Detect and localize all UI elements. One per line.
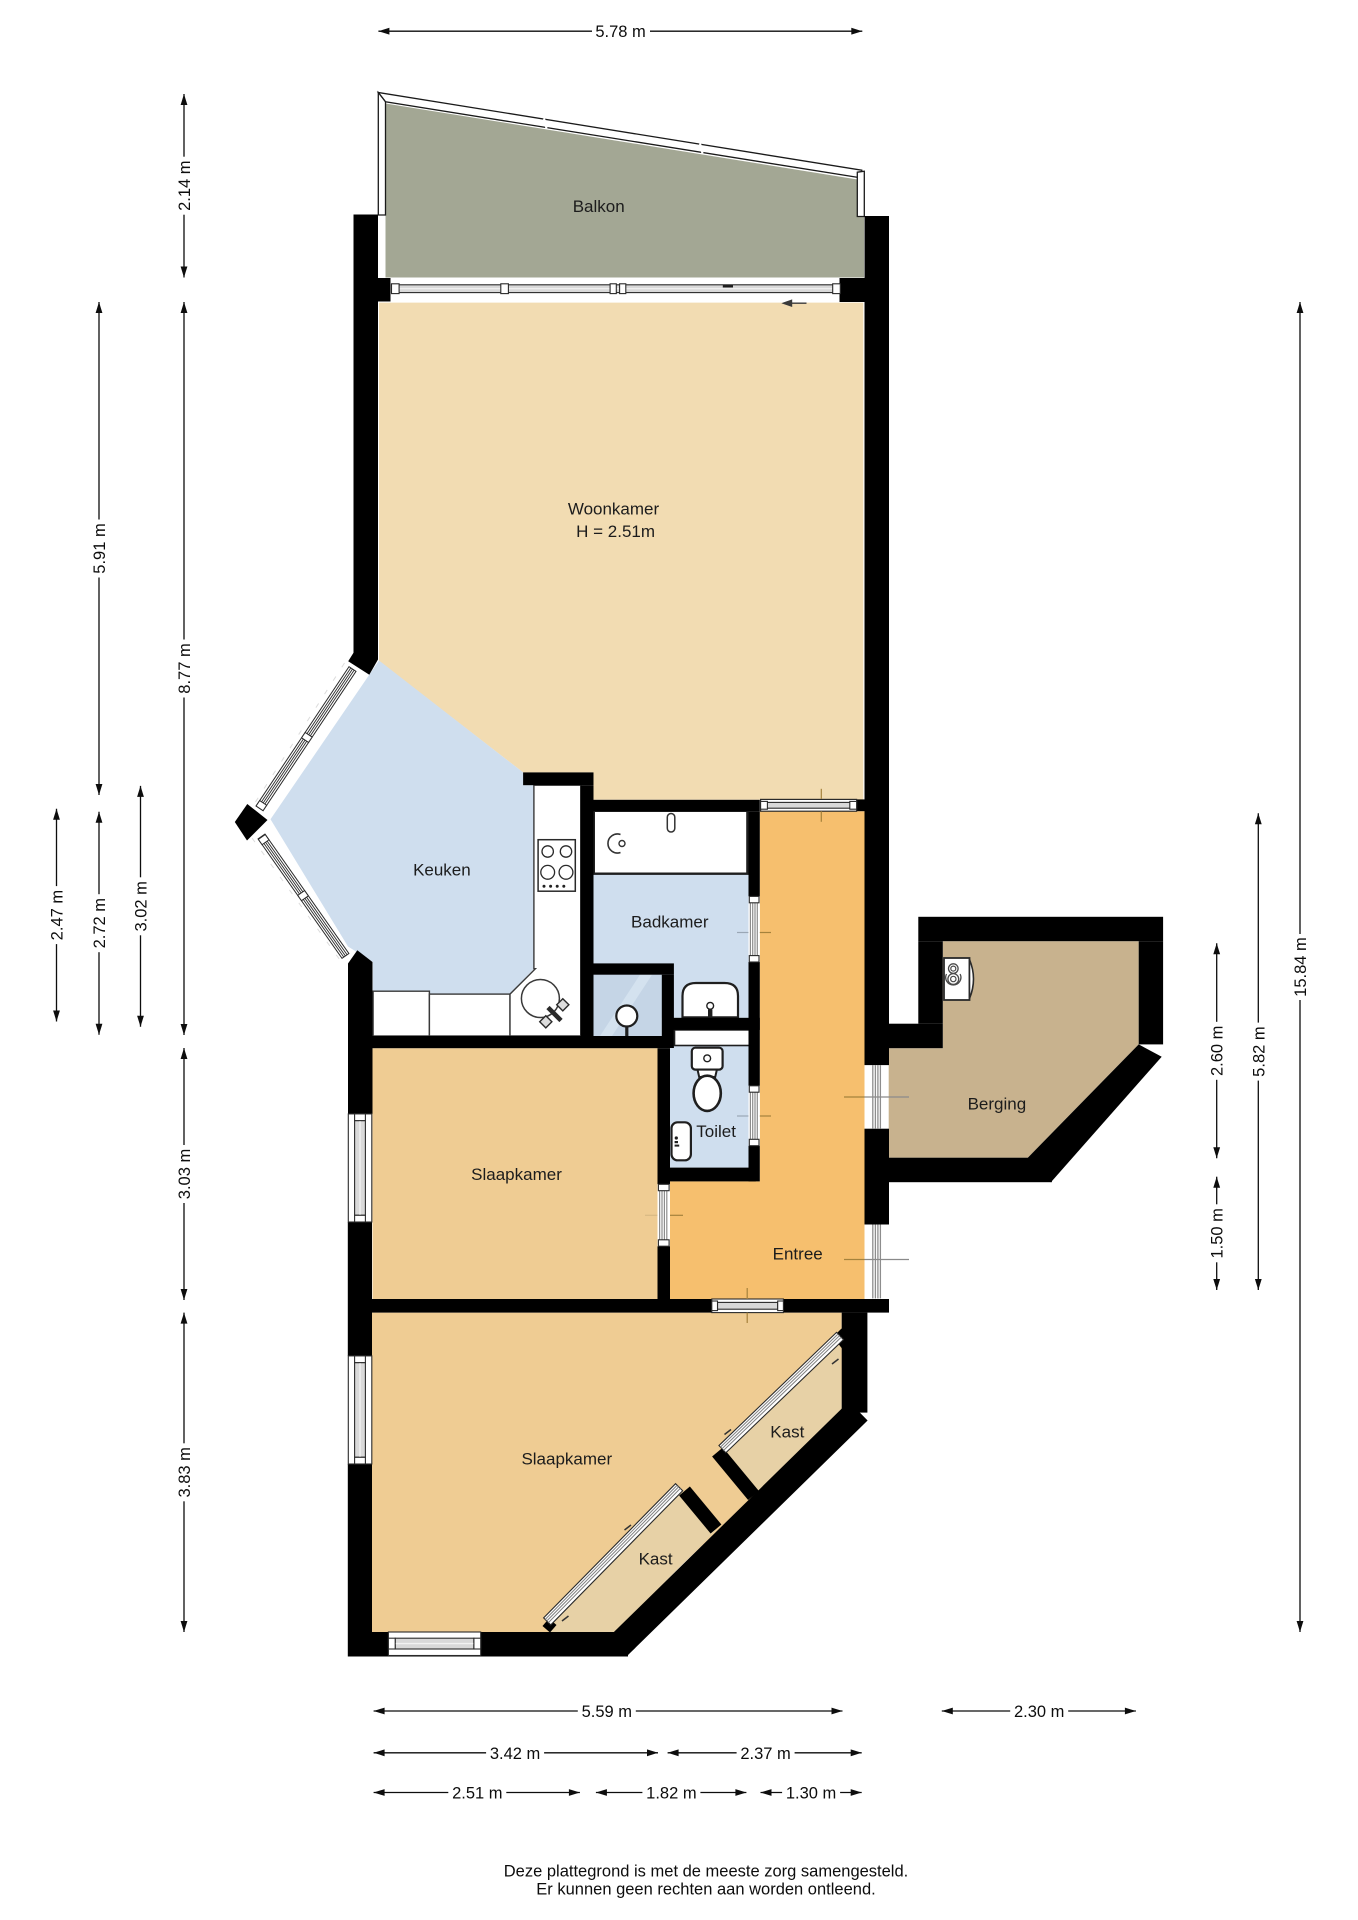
svg-text:5.59 m: 5.59 m [582,1703,632,1721]
svg-text:Berging: Berging [968,1095,1027,1114]
svg-text:Keuken: Keuken [413,860,471,879]
svg-text:Slaapkamer: Slaapkamer [471,1165,562,1184]
svg-text:Entree: Entree [773,1245,823,1264]
svg-text:5.78 m: 5.78 m [595,23,645,41]
svg-text:Slaapkamer: Slaapkamer [521,1450,612,1469]
svg-text:3.42 m: 3.42 m [490,1745,540,1763]
svg-text:Toilet: Toilet [696,1122,736,1141]
svg-text:Badkamer: Badkamer [631,912,709,931]
svg-text:2.30 m: 2.30 m [1014,1703,1064,1721]
svg-text:Er kunnen geen rechten aan wor: Er kunnen geen rechten aan worden ontlee… [536,1880,875,1898]
svg-text:Woonkamer: Woonkamer [568,500,660,519]
svg-text:5.91 m: 5.91 m [91,523,109,573]
svg-text:Deze plattegrond is met de mee: Deze plattegrond is met de meeste zorg s… [504,1862,908,1880]
svg-text:2.72 m: 2.72 m [91,898,109,948]
svg-text:2.51 m: 2.51 m [452,1785,502,1803]
svg-text:2.47 m: 2.47 m [49,890,67,940]
svg-text:H = 2.51m: H = 2.51m [576,522,655,541]
svg-text:5.82 m: 5.82 m [1250,1026,1268,1076]
svg-text:1.30 m: 1.30 m [786,1785,836,1803]
svg-text:2.60 m: 2.60 m [1209,1026,1227,1076]
svg-text:2.14 m: 2.14 m [176,160,194,210]
svg-text:1.82 m: 1.82 m [646,1785,696,1803]
svg-text:Kast: Kast [639,1550,673,1569]
svg-text:2.37 m: 2.37 m [740,1745,790,1763]
svg-text:Kast: Kast [770,1422,804,1441]
svg-text:3.83 m: 3.83 m [176,1447,194,1497]
svg-text:Balkon: Balkon [573,197,625,216]
svg-text:3.02 m: 3.02 m [133,881,151,931]
svg-text:8.77 m: 8.77 m [176,643,194,693]
svg-text:3.03 m: 3.03 m [176,1149,194,1199]
svg-text:1.50 m: 1.50 m [1209,1208,1227,1258]
svg-text:15.84 m: 15.84 m [1292,937,1310,997]
